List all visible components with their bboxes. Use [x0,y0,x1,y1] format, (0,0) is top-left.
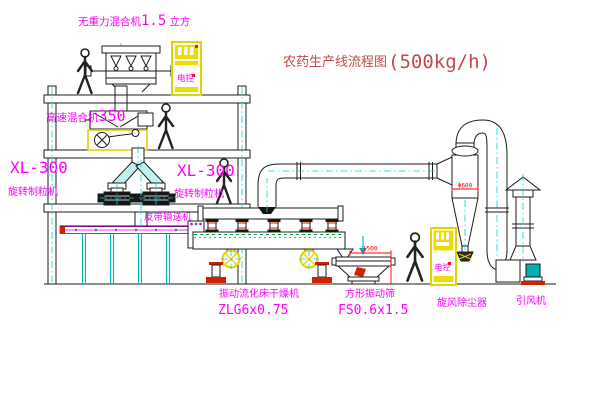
cabinet-bottom-label: 电控 [435,262,451,272]
granulator-model-right: XL-300 [177,161,235,180]
control-cabinet-top: 电控 [172,42,201,95]
granulator-model-left: XL-300 [10,158,68,177]
sieve-model-label: FS0.6x1.5 [338,303,408,318]
worker-figure-2 [159,104,173,148]
high-speed-mixer-label: 高速混合机350 [46,107,126,125]
diagram-title: 农药生产线流程图 [283,55,387,70]
control-cabinet-bottom: 电控 [431,228,456,285]
belt-conveyor [60,226,198,283]
exhaust-stack [506,174,540,262]
granulator-name-left: 旋转制粒机 [8,185,58,198]
granulator-left [98,183,136,208]
belt-conveyor-label: 皮带输送机 [144,211,192,223]
indicator-dot [195,45,198,48]
granulator-name-right: 旋转制粒机 [174,187,224,200]
spring-mounts [206,219,338,233]
dryer-name-label: 振动流化床干燥机 [219,287,299,300]
gravity-mixer-label: 无重力混合机1.5立方 [78,13,190,29]
granulator-right [137,183,175,208]
cyclone-label: 旋风除尘器 [437,296,487,309]
exhaust-duct [258,162,450,214]
induced-draft-fan [496,260,545,285]
cabinet-top-label: 电控 [177,73,195,84]
vibration-motor-right [299,249,319,269]
fluid-bed-dryer [188,206,353,283]
cad-flow-diagram: 电控 [0,0,600,403]
fan-label: 引风机 [516,294,546,307]
dryer-model-label: ZLG6x0.75 [218,303,288,318]
worker-figure-4 [407,233,422,281]
flow-diagram-svg: 电控 [0,0,600,403]
title-capacity: (500kg/h) [388,51,491,73]
dim-1500: 1500 [362,245,378,253]
y-duct [108,162,165,189]
dim-phi600: Φ600 [458,183,473,190]
sieve-name-label: 方形振动筛 [345,287,395,300]
